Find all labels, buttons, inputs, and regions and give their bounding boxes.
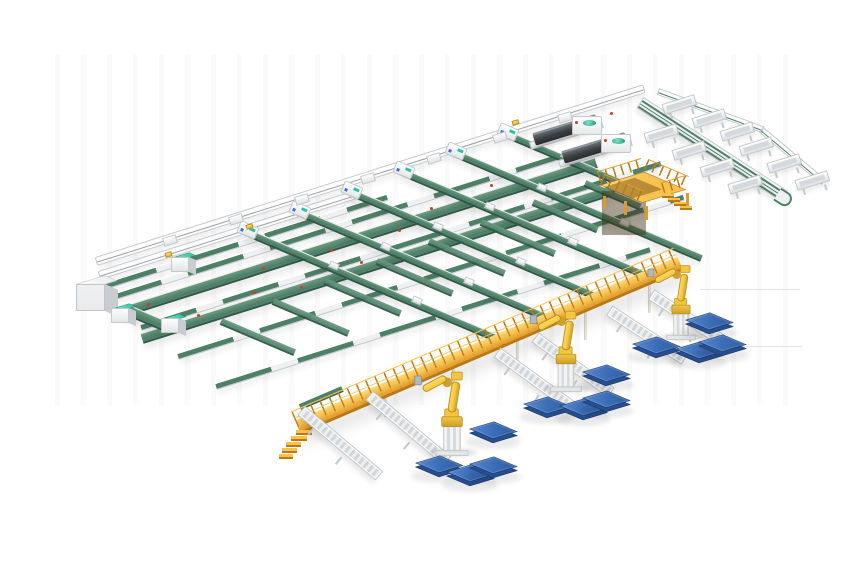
floor-streak	[700, 289, 800, 290]
sensor-dot	[262, 267, 265, 270]
sensor-dot	[197, 314, 200, 317]
robot-base	[672, 305, 691, 314]
teal-machine-front	[171, 257, 189, 272]
sensor-dot	[300, 286, 303, 289]
sensor-dot	[360, 261, 363, 264]
outfeed-roller-conveyor	[299, 407, 382, 479]
teal-machine-front	[161, 318, 179, 333]
teal-machine-side	[189, 257, 196, 275]
sensor-dot	[398, 229, 401, 232]
ramp-step	[286, 442, 301, 447]
ramp-step	[282, 448, 297, 453]
robot-counterweight	[680, 265, 690, 273]
sensor-dot	[610, 112, 613, 115]
robot-pedestal	[558, 363, 575, 387]
robot-base	[441, 416, 462, 427]
robot-wrist	[414, 375, 422, 385]
loader-indicator	[575, 121, 578, 124]
mezzanine-leg	[603, 196, 606, 209]
loader-scanner-dome	[612, 138, 625, 144]
sensor-dot	[330, 249, 333, 252]
mezzanine-leg	[624, 201, 627, 215]
sensor-dot	[490, 184, 493, 187]
teal-machine-front	[111, 308, 129, 323]
sortation-facility-render	[0, 0, 860, 580]
robot-wrist	[647, 269, 654, 278]
teal-machine-side	[129, 308, 136, 326]
cabinet-front	[76, 284, 105, 311]
ramp-step	[291, 436, 307, 441]
sensor-dot	[147, 303, 150, 306]
stair-step	[680, 206, 692, 210]
robot-wrist	[530, 315, 537, 324]
teal-machine-side	[179, 318, 186, 336]
loader-scanner-dome	[583, 120, 596, 126]
sensor-dot	[253, 291, 256, 294]
ramp-step	[279, 454, 293, 459]
robot-base	[556, 354, 576, 364]
robot-counterweight	[451, 372, 463, 381]
loader-indicator	[604, 139, 607, 142]
robot-counterweight	[565, 311, 576, 319]
mezzanine-leg	[686, 193, 689, 206]
mezzanine-leg	[645, 206, 648, 220]
robot-pedestal	[443, 426, 460, 451]
sensor-dot	[430, 207, 433, 210]
